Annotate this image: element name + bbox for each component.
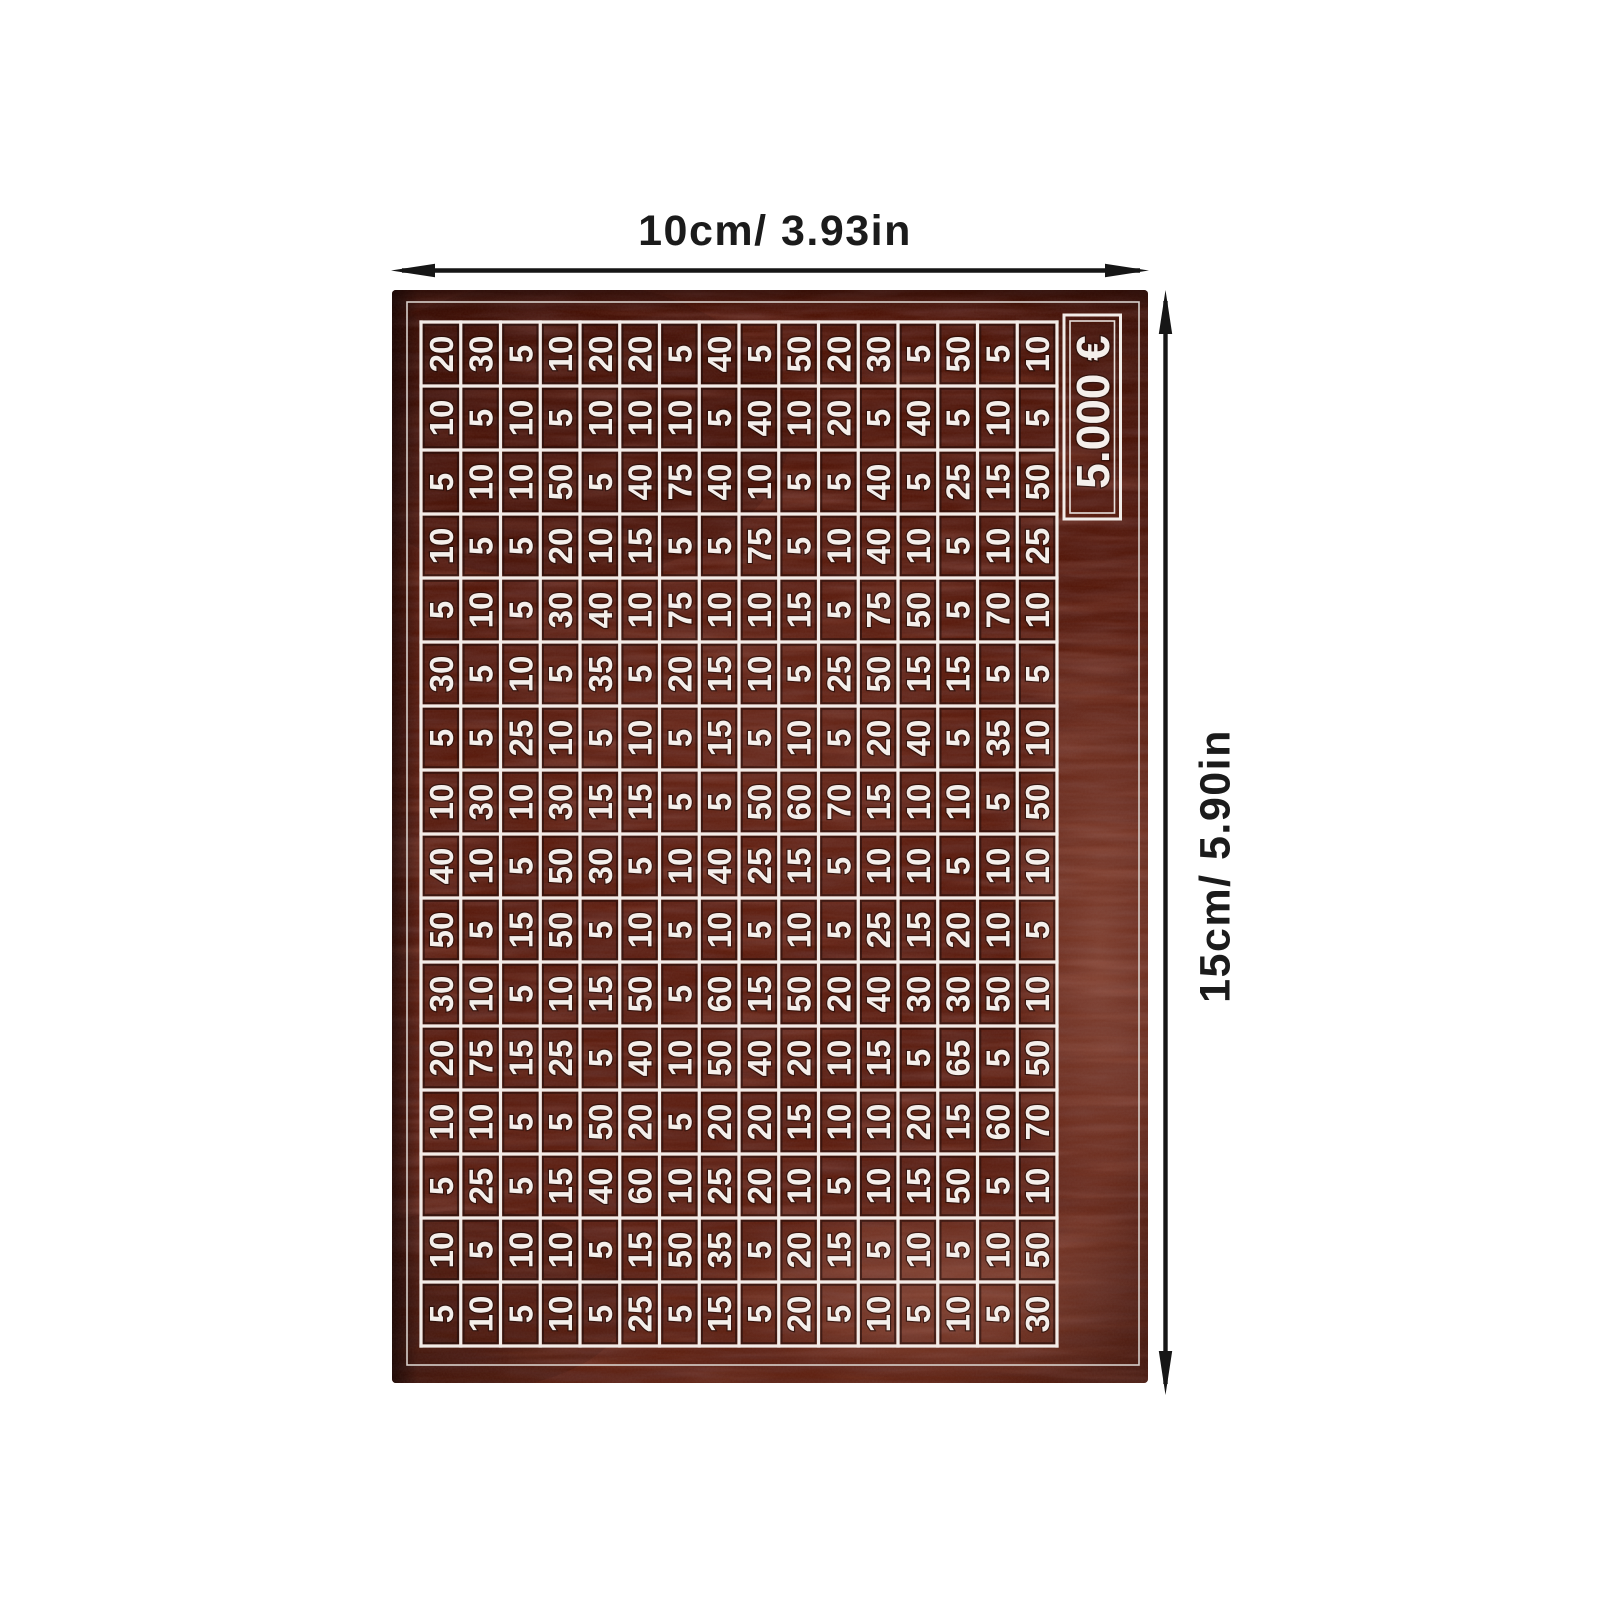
svg-text:75: 75 [661, 464, 698, 501]
svg-text:5: 5 [940, 857, 977, 875]
svg-text:40: 40 [701, 336, 738, 373]
svg-text:5: 5 [463, 921, 500, 939]
svg-text:40: 40 [622, 1040, 659, 1077]
svg-text:5: 5 [940, 1241, 977, 1259]
svg-text:15: 15 [900, 912, 937, 949]
svg-text:50: 50 [1019, 784, 1056, 821]
svg-text:35: 35 [582, 656, 619, 693]
svg-text:25: 25 [463, 1168, 500, 1205]
svg-text:5: 5 [542, 665, 579, 683]
svg-text:5: 5 [741, 1305, 778, 1323]
svg-text:5: 5 [502, 1305, 539, 1323]
svg-text:10: 10 [423, 1232, 460, 1269]
svg-text:25: 25 [1019, 528, 1056, 565]
svg-text:10: 10 [661, 1040, 698, 1077]
svg-text:50: 50 [860, 656, 897, 693]
svg-text:5: 5 [463, 729, 500, 747]
svg-text:25: 25 [860, 912, 897, 949]
svg-text:15: 15 [860, 784, 897, 821]
svg-text:5: 5 [979, 1177, 1016, 1195]
svg-text:15: 15 [622, 784, 659, 821]
svg-text:60: 60 [781, 784, 818, 821]
svg-text:10: 10 [542, 1296, 579, 1333]
svg-text:15: 15 [701, 1296, 738, 1333]
svg-text:5: 5 [423, 1305, 460, 1323]
svg-text:15: 15 [701, 720, 738, 757]
svg-text:10: 10 [463, 1296, 500, 1333]
svg-text:10: 10 [622, 400, 659, 437]
svg-text:5: 5 [582, 1049, 619, 1067]
svg-text:40: 40 [741, 400, 778, 437]
svg-text:5: 5 [781, 665, 818, 683]
svg-text:10: 10 [661, 400, 698, 437]
svg-text:10: 10 [1019, 848, 1056, 885]
svg-text:10: 10 [1019, 592, 1056, 629]
svg-text:5: 5 [502, 1177, 539, 1195]
svg-text:10: 10 [502, 656, 539, 693]
svg-text:10: 10 [622, 720, 659, 757]
svg-text:10: 10 [463, 848, 500, 885]
svg-text:10: 10 [1019, 720, 1056, 757]
svg-text:5: 5 [979, 793, 1016, 811]
svg-text:15: 15 [820, 1232, 857, 1269]
svg-text:5: 5 [979, 1049, 1016, 1067]
svg-text:5: 5 [940, 409, 977, 427]
svg-text:40: 40 [741, 1040, 778, 1077]
svg-text:60: 60 [979, 1104, 1016, 1141]
svg-text:5: 5 [900, 1049, 937, 1067]
svg-text:25: 25 [741, 848, 778, 885]
svg-text:40: 40 [900, 400, 937, 437]
svg-text:10: 10 [820, 1040, 857, 1077]
svg-text:10: 10 [741, 592, 778, 629]
svg-text:10cm/ 3.93in: 10cm/ 3.93in [638, 207, 912, 255]
svg-text:60: 60 [622, 1168, 659, 1205]
svg-text:30: 30 [542, 592, 579, 629]
svg-text:5: 5 [661, 729, 698, 747]
svg-text:5: 5 [661, 537, 698, 555]
svg-text:5: 5 [423, 729, 460, 747]
svg-text:50: 50 [940, 336, 977, 373]
svg-text:10: 10 [741, 656, 778, 693]
svg-text:15: 15 [900, 656, 937, 693]
svg-text:15: 15 [900, 1168, 937, 1205]
svg-text:50: 50 [1019, 464, 1056, 501]
svg-text:10: 10 [463, 592, 500, 629]
svg-text:5: 5 [820, 1305, 857, 1323]
svg-text:10: 10 [900, 1232, 937, 1269]
svg-text:5: 5 [463, 665, 500, 683]
svg-text:10: 10 [542, 976, 579, 1013]
svg-text:10: 10 [701, 912, 738, 949]
svg-text:5: 5 [463, 1241, 500, 1259]
svg-text:30: 30 [940, 976, 977, 1013]
svg-text:40: 40 [701, 464, 738, 501]
svg-text:5: 5 [741, 921, 778, 939]
svg-text:5: 5 [582, 729, 619, 747]
svg-text:20: 20 [900, 1104, 937, 1141]
svg-text:50: 50 [979, 976, 1016, 1013]
svg-text:15: 15 [582, 976, 619, 1013]
svg-text:15: 15 [622, 1232, 659, 1269]
svg-text:20: 20 [542, 528, 579, 565]
svg-text:5: 5 [661, 985, 698, 1003]
svg-text:5: 5 [820, 729, 857, 747]
svg-text:40: 40 [423, 848, 460, 885]
svg-text:5: 5 [781, 537, 818, 555]
svg-text:30: 30 [542, 784, 579, 821]
svg-text:10: 10 [979, 528, 1016, 565]
svg-text:5: 5 [701, 793, 738, 811]
svg-text:75: 75 [860, 592, 897, 629]
svg-text:10: 10 [463, 1104, 500, 1141]
svg-text:65: 65 [940, 1040, 977, 1077]
svg-text:5: 5 [1019, 409, 1056, 427]
svg-text:15: 15 [860, 1040, 897, 1077]
svg-text:10: 10 [661, 848, 698, 885]
svg-text:35: 35 [701, 1232, 738, 1269]
svg-text:20: 20 [622, 1104, 659, 1141]
svg-text:5: 5 [582, 473, 619, 491]
svg-text:10: 10 [781, 720, 818, 757]
svg-text:10: 10 [463, 464, 500, 501]
svg-text:5: 5 [1019, 665, 1056, 683]
svg-text:50: 50 [661, 1232, 698, 1269]
svg-text:10: 10 [781, 400, 818, 437]
svg-text:25: 25 [940, 464, 977, 501]
svg-text:5: 5 [463, 537, 500, 555]
svg-text:5: 5 [900, 473, 937, 491]
svg-text:50: 50 [542, 912, 579, 949]
svg-text:50: 50 [542, 848, 579, 885]
svg-text:10: 10 [1019, 336, 1056, 373]
svg-text:5: 5 [701, 409, 738, 427]
svg-text:50: 50 [741, 784, 778, 821]
svg-text:5: 5 [502, 985, 539, 1003]
svg-text:10: 10 [582, 400, 619, 437]
svg-text:10: 10 [1019, 976, 1056, 1013]
svg-text:5: 5 [820, 857, 857, 875]
svg-text:10: 10 [542, 720, 579, 757]
svg-text:30: 30 [860, 336, 897, 373]
svg-text:10: 10 [820, 528, 857, 565]
svg-text:5: 5 [622, 857, 659, 875]
svg-text:15: 15 [940, 656, 977, 693]
svg-text:5: 5 [781, 473, 818, 491]
svg-text:10: 10 [940, 784, 977, 821]
svg-text:10: 10 [900, 784, 937, 821]
svg-text:5: 5 [979, 665, 1016, 683]
svg-text:60: 60 [701, 976, 738, 1013]
svg-text:5: 5 [820, 601, 857, 619]
svg-text:5: 5 [502, 345, 539, 363]
svg-text:5: 5 [502, 601, 539, 619]
svg-text:5: 5 [820, 921, 857, 939]
svg-text:10: 10 [423, 528, 460, 565]
svg-text:25: 25 [622, 1296, 659, 1333]
svg-text:30: 30 [423, 976, 460, 1013]
svg-text:10: 10 [860, 1104, 897, 1141]
svg-text:10: 10 [423, 400, 460, 437]
svg-text:10: 10 [622, 592, 659, 629]
svg-text:10: 10 [781, 912, 818, 949]
svg-text:20: 20 [661, 656, 698, 693]
svg-text:40: 40 [582, 592, 619, 629]
svg-text:50: 50 [622, 976, 659, 1013]
svg-text:10: 10 [741, 464, 778, 501]
svg-text:5: 5 [741, 345, 778, 363]
svg-text:70: 70 [1019, 1104, 1056, 1141]
svg-text:10: 10 [979, 400, 1016, 437]
svg-text:5: 5 [502, 537, 539, 555]
svg-text:10: 10 [582, 528, 619, 565]
svg-text:10: 10 [502, 1232, 539, 1269]
svg-text:15: 15 [502, 1040, 539, 1077]
svg-text:5: 5 [582, 921, 619, 939]
svg-text:5: 5 [940, 537, 977, 555]
svg-text:5: 5 [1019, 921, 1056, 939]
svg-text:30: 30 [463, 336, 500, 373]
svg-text:10: 10 [860, 848, 897, 885]
svg-text:5: 5 [860, 409, 897, 427]
svg-text:20: 20 [741, 1104, 778, 1141]
svg-text:15cm/ 5.90in: 15cm/ 5.90in [1192, 729, 1240, 1003]
svg-text:10: 10 [979, 848, 1016, 885]
svg-text:25: 25 [542, 1040, 579, 1077]
svg-text:5.000 €: 5.000 € [1067, 335, 1119, 488]
svg-text:10: 10 [900, 848, 937, 885]
svg-text:5: 5 [860, 1241, 897, 1259]
svg-text:10: 10 [423, 1104, 460, 1141]
svg-text:5: 5 [661, 345, 698, 363]
svg-text:20: 20 [582, 336, 619, 373]
svg-text:5: 5 [582, 1305, 619, 1323]
svg-text:10: 10 [781, 1168, 818, 1205]
svg-text:5: 5 [423, 1177, 460, 1195]
svg-text:50: 50 [1019, 1040, 1056, 1077]
svg-text:5: 5 [820, 473, 857, 491]
svg-text:10: 10 [979, 1232, 1016, 1269]
svg-text:20: 20 [820, 400, 857, 437]
svg-text:50: 50 [701, 1040, 738, 1077]
svg-text:5: 5 [701, 537, 738, 555]
svg-text:20: 20 [423, 336, 460, 373]
svg-text:50: 50 [900, 592, 937, 629]
svg-text:20: 20 [860, 720, 897, 757]
svg-text:10: 10 [900, 528, 937, 565]
svg-text:15: 15 [781, 592, 818, 629]
svg-text:5: 5 [463, 409, 500, 427]
svg-text:10: 10 [1019, 1168, 1056, 1205]
svg-text:10: 10 [860, 1296, 897, 1333]
svg-text:15: 15 [781, 848, 818, 885]
svg-text:20: 20 [423, 1040, 460, 1077]
svg-text:15: 15 [622, 528, 659, 565]
svg-text:5: 5 [661, 793, 698, 811]
svg-text:50: 50 [582, 1104, 619, 1141]
svg-text:20: 20 [622, 336, 659, 373]
svg-text:10: 10 [622, 912, 659, 949]
svg-text:20: 20 [741, 1168, 778, 1205]
svg-text:5: 5 [661, 1113, 698, 1131]
svg-text:40: 40 [622, 464, 659, 501]
svg-text:20: 20 [820, 976, 857, 1013]
svg-text:50: 50 [542, 464, 579, 501]
svg-text:15: 15 [542, 1168, 579, 1205]
svg-text:10: 10 [502, 784, 539, 821]
svg-text:75: 75 [463, 1040, 500, 1077]
svg-text:10: 10 [860, 1168, 897, 1205]
svg-text:75: 75 [741, 528, 778, 565]
svg-text:40: 40 [860, 464, 897, 501]
svg-text:10: 10 [661, 1168, 698, 1205]
svg-text:5: 5 [661, 1305, 698, 1323]
svg-text:15: 15 [741, 976, 778, 1013]
svg-text:10: 10 [423, 784, 460, 821]
svg-text:10: 10 [701, 592, 738, 629]
svg-text:10: 10 [820, 1104, 857, 1141]
svg-text:25: 25 [701, 1168, 738, 1205]
svg-text:5: 5 [940, 601, 977, 619]
svg-text:10: 10 [940, 1296, 977, 1333]
svg-text:10: 10 [542, 1232, 579, 1269]
svg-text:30: 30 [463, 784, 500, 821]
svg-text:20: 20 [940, 912, 977, 949]
svg-text:5: 5 [502, 1113, 539, 1131]
svg-text:30: 30 [900, 976, 937, 1013]
svg-text:40: 40 [701, 848, 738, 885]
svg-text:30: 30 [423, 656, 460, 693]
svg-text:10: 10 [542, 336, 579, 373]
svg-text:5: 5 [741, 729, 778, 747]
svg-text:5: 5 [979, 345, 1016, 363]
svg-text:40: 40 [900, 720, 937, 757]
svg-text:5: 5 [502, 857, 539, 875]
svg-text:5: 5 [542, 409, 579, 427]
svg-text:5: 5 [423, 473, 460, 491]
svg-text:40: 40 [860, 528, 897, 565]
svg-text:20: 20 [701, 1104, 738, 1141]
svg-text:15: 15 [940, 1104, 977, 1141]
svg-text:50: 50 [940, 1168, 977, 1205]
svg-text:5: 5 [542, 1113, 579, 1131]
svg-text:10: 10 [502, 400, 539, 437]
svg-text:20: 20 [781, 1232, 818, 1269]
svg-text:15: 15 [701, 656, 738, 693]
svg-text:40: 40 [860, 976, 897, 1013]
svg-text:5: 5 [979, 1305, 1016, 1323]
svg-text:30: 30 [1019, 1296, 1056, 1333]
svg-text:20: 20 [820, 336, 857, 373]
svg-text:70: 70 [979, 592, 1016, 629]
svg-text:5: 5 [940, 729, 977, 747]
svg-text:5: 5 [622, 665, 659, 683]
svg-text:5: 5 [741, 1241, 778, 1259]
svg-text:5: 5 [900, 345, 937, 363]
svg-text:10: 10 [502, 464, 539, 501]
svg-text:20: 20 [781, 1040, 818, 1077]
svg-text:25: 25 [502, 720, 539, 757]
svg-text:15: 15 [502, 912, 539, 949]
svg-text:35: 35 [979, 720, 1016, 757]
svg-text:50: 50 [781, 976, 818, 1013]
svg-text:5: 5 [820, 1177, 857, 1195]
svg-text:5: 5 [900, 1305, 937, 1323]
svg-text:50: 50 [1019, 1232, 1056, 1269]
svg-text:10: 10 [979, 912, 1016, 949]
svg-text:10: 10 [463, 976, 500, 1013]
svg-text:5: 5 [582, 1241, 619, 1259]
svg-text:15: 15 [979, 464, 1016, 501]
svg-text:40: 40 [582, 1168, 619, 1205]
svg-text:15: 15 [582, 784, 619, 821]
svg-text:50: 50 [781, 336, 818, 373]
svg-text:5: 5 [661, 921, 698, 939]
svg-text:30: 30 [582, 848, 619, 885]
svg-text:5: 5 [423, 601, 460, 619]
svg-text:25: 25 [820, 656, 857, 693]
svg-text:70: 70 [820, 784, 857, 821]
svg-text:20: 20 [781, 1296, 818, 1333]
svg-text:75: 75 [661, 592, 698, 629]
svg-text:50: 50 [423, 912, 460, 949]
svg-text:15: 15 [781, 1104, 818, 1141]
